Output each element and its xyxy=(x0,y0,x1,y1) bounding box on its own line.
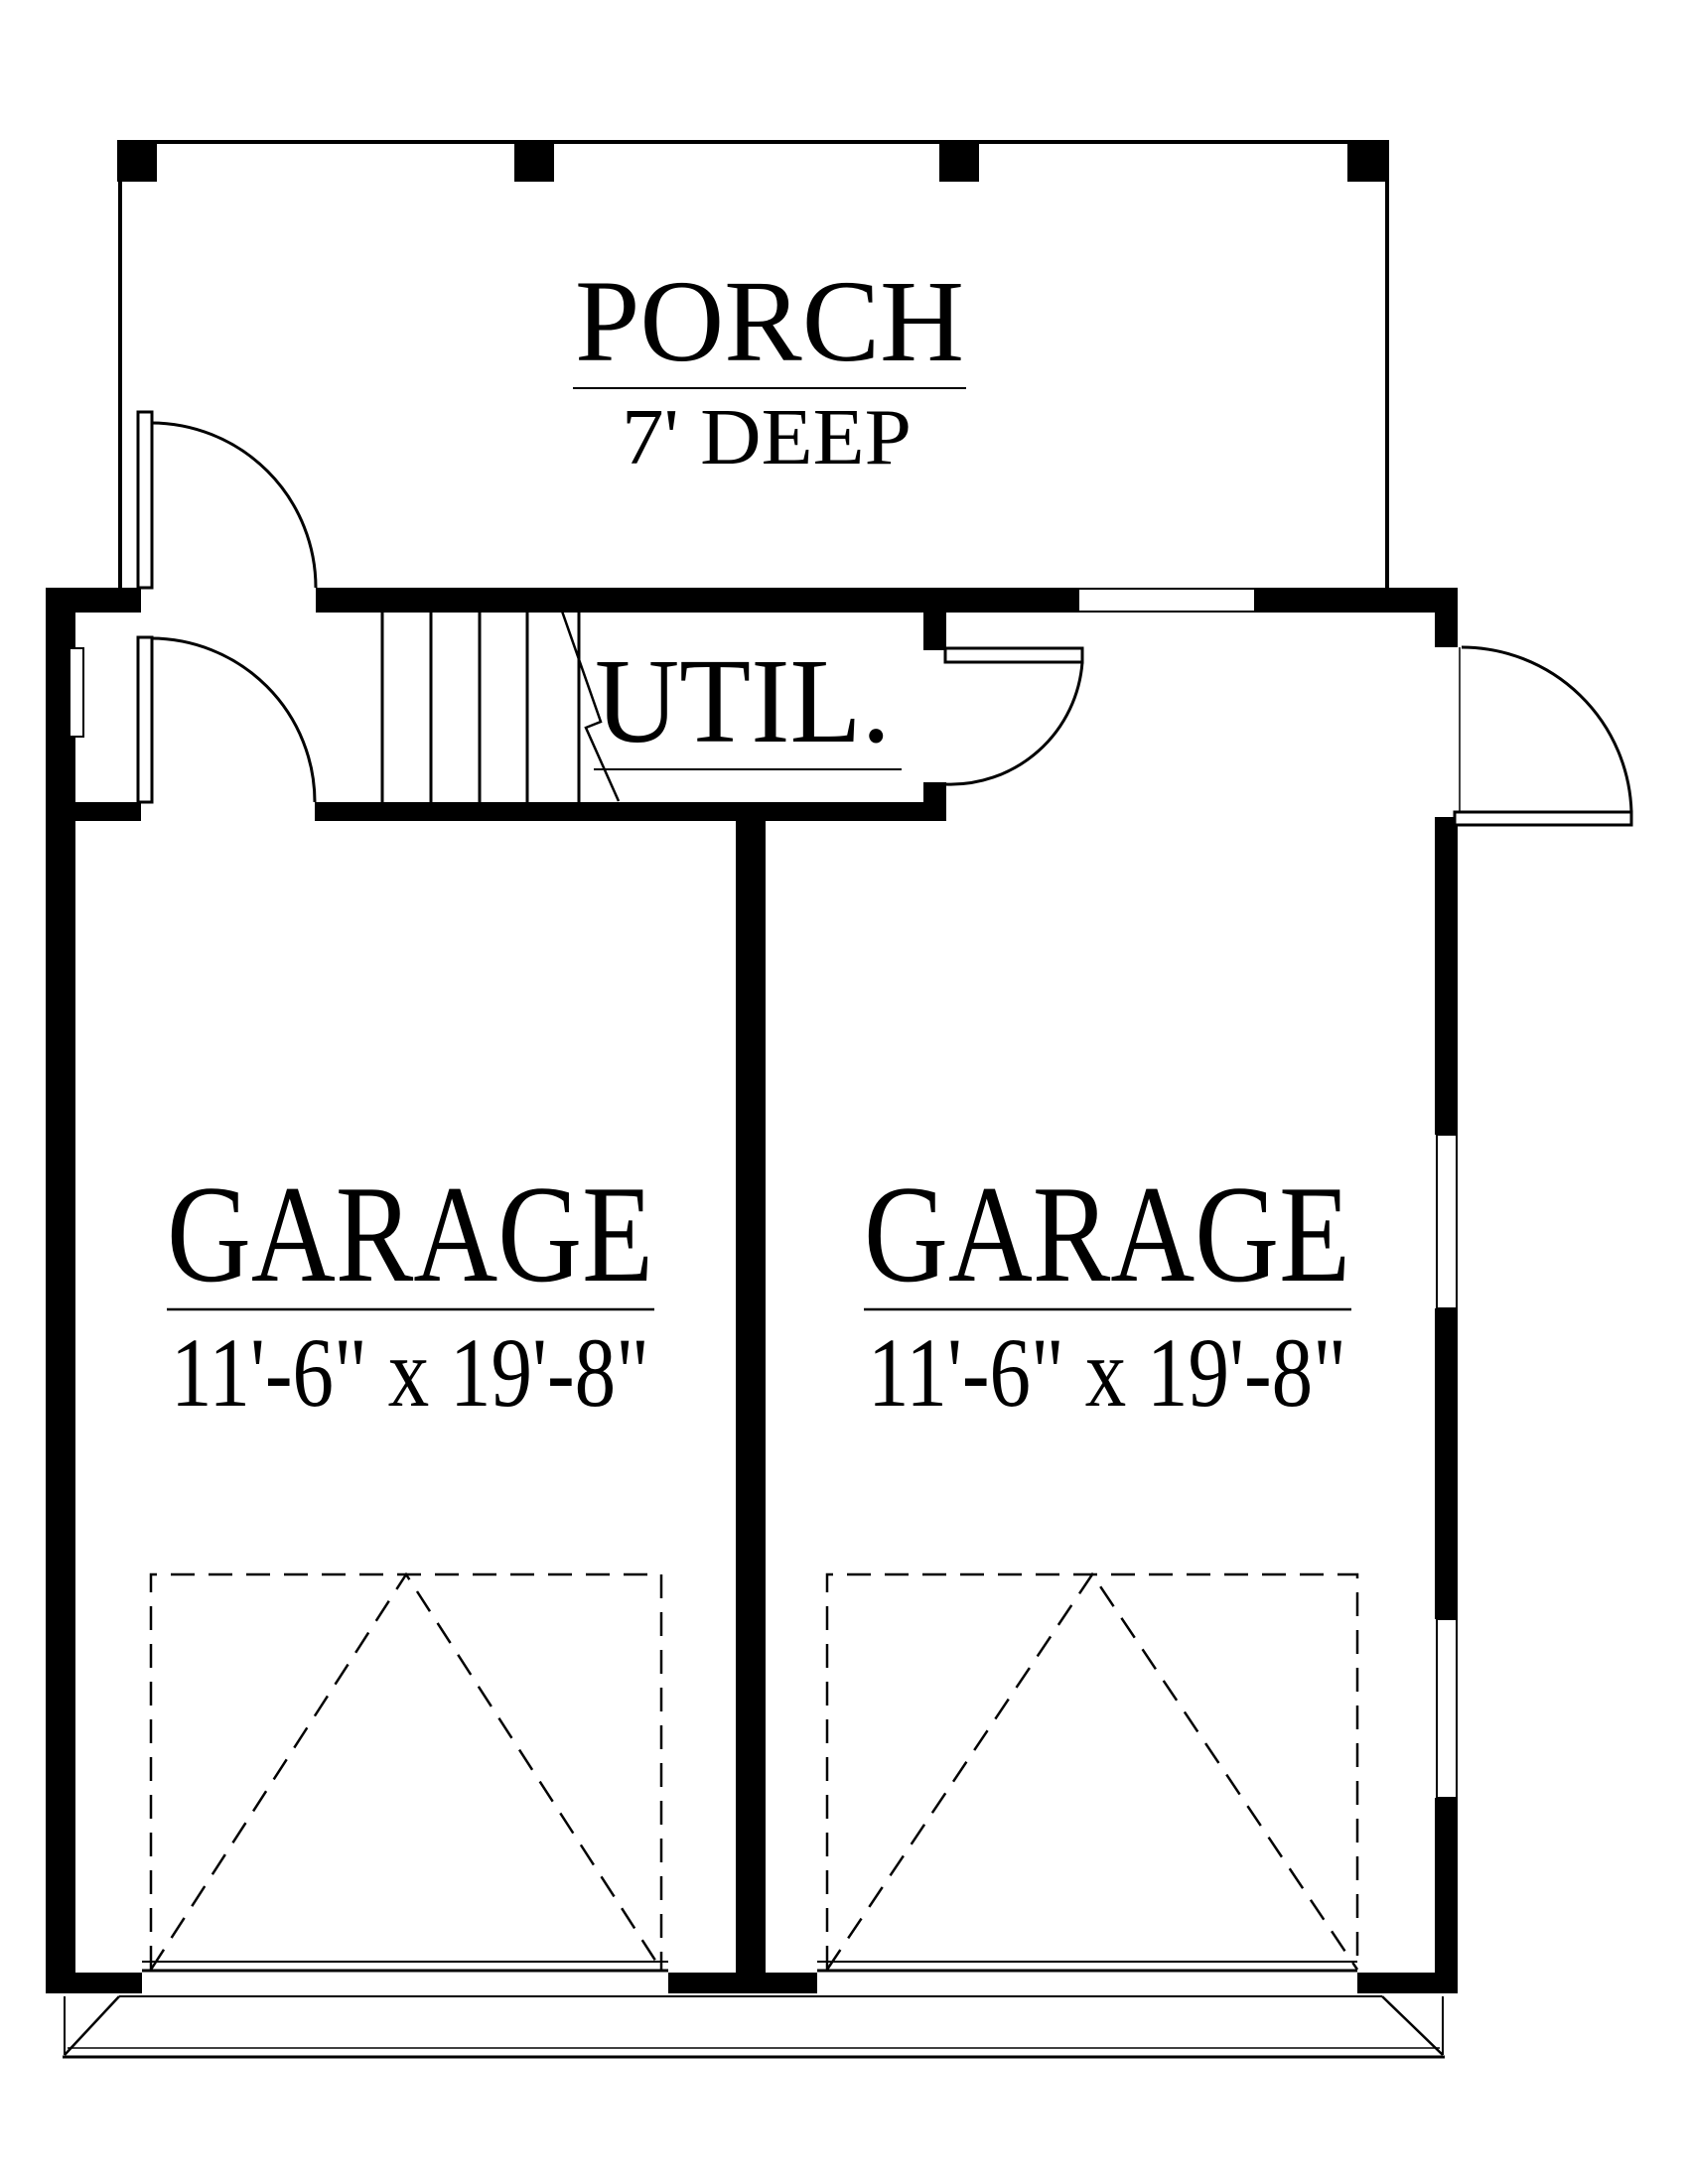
porch-post xyxy=(939,140,979,182)
utility-label: UTIL. xyxy=(595,634,891,768)
left-wall-recess xyxy=(70,648,83,737)
garage-door-outline xyxy=(151,1574,661,1970)
driveway-edge xyxy=(1382,1996,1443,2055)
garage-right-dimensions: 11'-6" x 19'-8" xyxy=(868,1317,1346,1428)
garage-door-outline xyxy=(827,1574,1357,1970)
floor-plan: PORCH 7' DEEP UTIL. GARAGE 11'-6" x 19'-… xyxy=(0,0,1688,2184)
driveway-apron xyxy=(63,1996,1445,2057)
bottom-wall xyxy=(46,1973,142,1993)
utility-wall xyxy=(923,613,946,650)
door-leaf xyxy=(945,648,1082,662)
door-swing-arc xyxy=(151,423,316,588)
porch-post xyxy=(1347,140,1387,182)
porch-post xyxy=(117,140,157,182)
door-swing-arc xyxy=(945,662,1082,784)
porch-entry-door xyxy=(138,412,316,588)
utility-wall xyxy=(923,782,946,821)
floor-plan-drawing: PORCH 7' DEEP UTIL. GARAGE 11'-6" x 19'-… xyxy=(0,0,1688,2184)
porch-label: PORCH xyxy=(575,256,964,386)
right-wall xyxy=(1435,588,1458,647)
stairs xyxy=(382,603,619,802)
interior-garage-door xyxy=(138,637,315,802)
door-swing-arc xyxy=(151,638,315,802)
right-wall xyxy=(1435,817,1458,1135)
hall-wall xyxy=(315,802,946,821)
utility-door xyxy=(945,648,1082,784)
garage-door-right xyxy=(827,1574,1357,1970)
front-wall xyxy=(1255,588,1458,613)
garage-divider-wall xyxy=(736,821,766,1976)
bottom-wall xyxy=(668,1973,817,1993)
side-entry-door xyxy=(1455,647,1631,825)
door-swing-arc xyxy=(1462,647,1631,812)
left-wall xyxy=(46,588,75,1993)
right-window-lower xyxy=(1437,1619,1457,1798)
bottom-wall xyxy=(1357,1973,1458,1993)
door-leaf xyxy=(1455,812,1631,825)
door-leaf xyxy=(138,412,152,588)
door-leaf xyxy=(138,637,152,802)
garage-left-dimensions: 11'-6" x 19'-8" xyxy=(171,1317,649,1428)
garage-door-swing xyxy=(827,1574,1357,1970)
garage-left-label: GARAGE xyxy=(167,1158,653,1311)
right-wall xyxy=(1435,1798,1458,1993)
porch-post xyxy=(514,140,554,182)
garage-door-swing xyxy=(151,1574,661,1970)
garage-door-left xyxy=(151,1574,661,1970)
right-window-upper xyxy=(1437,1135,1457,1308)
front-window xyxy=(1078,589,1255,612)
porch-depth-label: 7' DEEP xyxy=(622,394,912,481)
hall-wall xyxy=(46,802,141,821)
garage-right-label: GARAGE xyxy=(864,1158,1350,1311)
driveway-edge xyxy=(65,1996,119,2055)
front-wall xyxy=(316,588,1078,613)
right-wall xyxy=(1435,1308,1458,1619)
